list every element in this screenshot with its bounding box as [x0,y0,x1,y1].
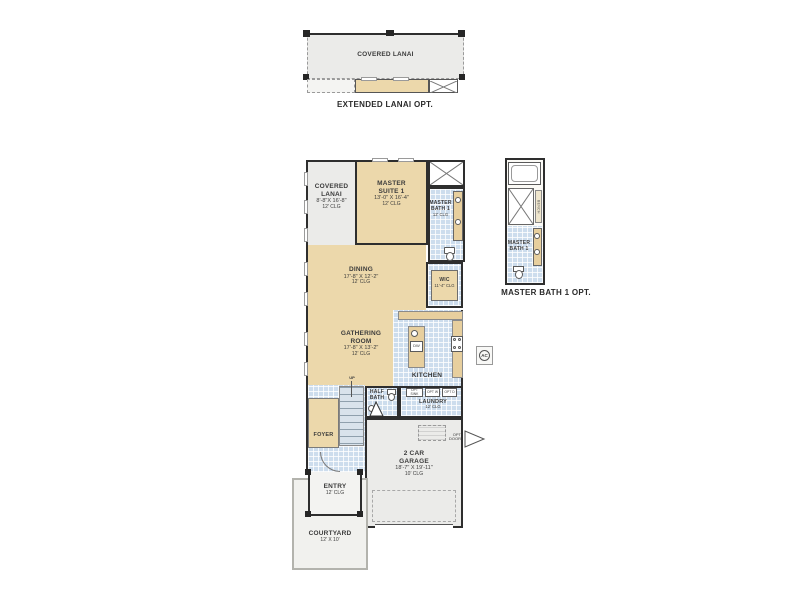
entry-clg: 12' CLG [308,491,362,497]
courtyard-dims: 12' X 10' [292,538,368,544]
dining-name: DINING [316,266,406,274]
wic-label: WIC 11'-4" CLG [431,278,458,289]
burner-icon [453,338,456,341]
shower-bench: BENCH [535,190,542,223]
opt-door-text: OPT DOOR [449,432,461,441]
garage-door-dashed [372,490,456,522]
opt-dryer-label: OPT D [444,391,454,395]
wall-post [458,30,465,37]
wall-post [357,469,363,475]
kitchen-counter-top [398,311,463,320]
wall-post [357,511,363,517]
opt-door-label: OPT DOOR [445,433,461,442]
master-suite-label: MASTER SUITE 1 13'-0" X 16'-4" 12' CLG [355,180,428,208]
master-bath-opt-caption: MASTER BATH 1 OPT. [484,288,608,297]
wall-post [386,30,394,36]
master-bath-label: MASTER BATH 1 12' CLG [427,201,454,218]
window [372,158,388,162]
opt-shower [508,188,534,225]
opt-sink-label: OPT SINK [407,389,422,396]
burner-icon [453,346,456,349]
floor-plan: COVERED LANAI EXTENDED LANAI OPT. COVERE… [0,0,800,600]
island-sink-icon [411,330,418,337]
kitchen-name: KITCHEN [396,372,458,380]
opt-washer-label: OPT W [427,391,438,395]
dining-label: DINING 17'-8" X 12'-2" 12' CLG [316,266,406,286]
door-swing-triangles [368,400,398,416]
window [304,362,308,376]
ac-label: AC [481,353,488,358]
master-bath-name: MASTER BATH 1 [427,201,454,213]
master-bath-clg: 12' CLG [427,213,454,218]
room-foyer [308,398,339,448]
dining-clg: 12' CLG [316,280,406,286]
wall-post [305,469,311,475]
garage-door-opening [375,524,453,530]
opt-washer-box: OPT W [425,388,440,397]
burner-icon [458,338,461,341]
window [393,77,409,81]
wall-post [459,74,465,80]
sink-icon [455,197,461,203]
opt-sink-box: OPT SINK [406,388,423,397]
foyer-name: FOYER [308,432,339,438]
bench-label: BENCH [537,200,541,214]
wall-post [305,511,311,517]
garage-opt-storage [418,425,446,441]
window [398,158,414,162]
garage-name: 2 CAR GARAGE [394,450,434,465]
master-suite-clg: 12' CLG [355,202,428,208]
master-suite-name: MASTER SUITE 1 [369,180,415,195]
window [304,332,308,346]
opt-bath-name: MASTER BATH 1 [503,241,535,253]
courtyard-label: COURTYARD 12' X 10' [292,530,368,544]
garage-clg: 10' CLG [370,472,458,478]
garage-label: 2 CAR GARAGE 18'-7" X 19'-11" 10' CLG [370,450,458,478]
wall-post [303,30,310,37]
wic-clg: 11'-4" CLG [431,284,458,289]
ac-circle: AC [479,350,490,361]
stairs-up-label: UP [346,376,358,380]
window [304,228,308,242]
window [304,292,308,306]
laundry-clg: 12' CLG [405,405,461,410]
master-shower [428,160,465,187]
opt-dryer-box: OPT D [442,388,457,397]
entry-label: ENTRY 12' CLG [308,483,362,497]
covered-lanai-name: COVERED LANAI [306,183,357,198]
covered-lanai-label: COVERED LANAI 8'-8"X 16'-8" 12' CLG [306,183,357,211]
toilet-icon [446,252,454,261]
dishwasher-box: DW [410,341,423,352]
sink-icon [455,219,461,225]
opt-bath-label: MASTER BATH 1 [503,241,535,253]
foyer-label: FOYER [308,432,339,438]
covered-lanai-clg: 12' CLG [306,205,357,211]
dishwasher-label: DW [413,344,420,348]
extended-lanai-house-edge [355,79,429,93]
window [304,262,308,276]
laundry-label: LAUNDRY 12' CLG [405,399,461,410]
stairs-arrow [351,381,352,397]
opt-door-swing [464,428,487,450]
burner-icon [458,346,461,349]
kitchen-label: KITCHEN [396,372,458,380]
sink-icon [534,233,540,239]
shower-x-box [429,79,458,93]
ac-unit: AC [476,346,493,365]
extended-lanai-house-edge-open [307,79,355,93]
window [361,77,377,81]
tub-inner [511,165,538,182]
extended-lanai-label: COVERED LANAI [307,51,464,59]
gathering-name: GATHERING ROOM [332,330,390,345]
extended-lanai-caption: EXTENDED LANAI OPT. [300,100,470,109]
extended-lanai-text: COVERED LANAI [307,51,464,59]
toilet-icon [515,270,523,279]
